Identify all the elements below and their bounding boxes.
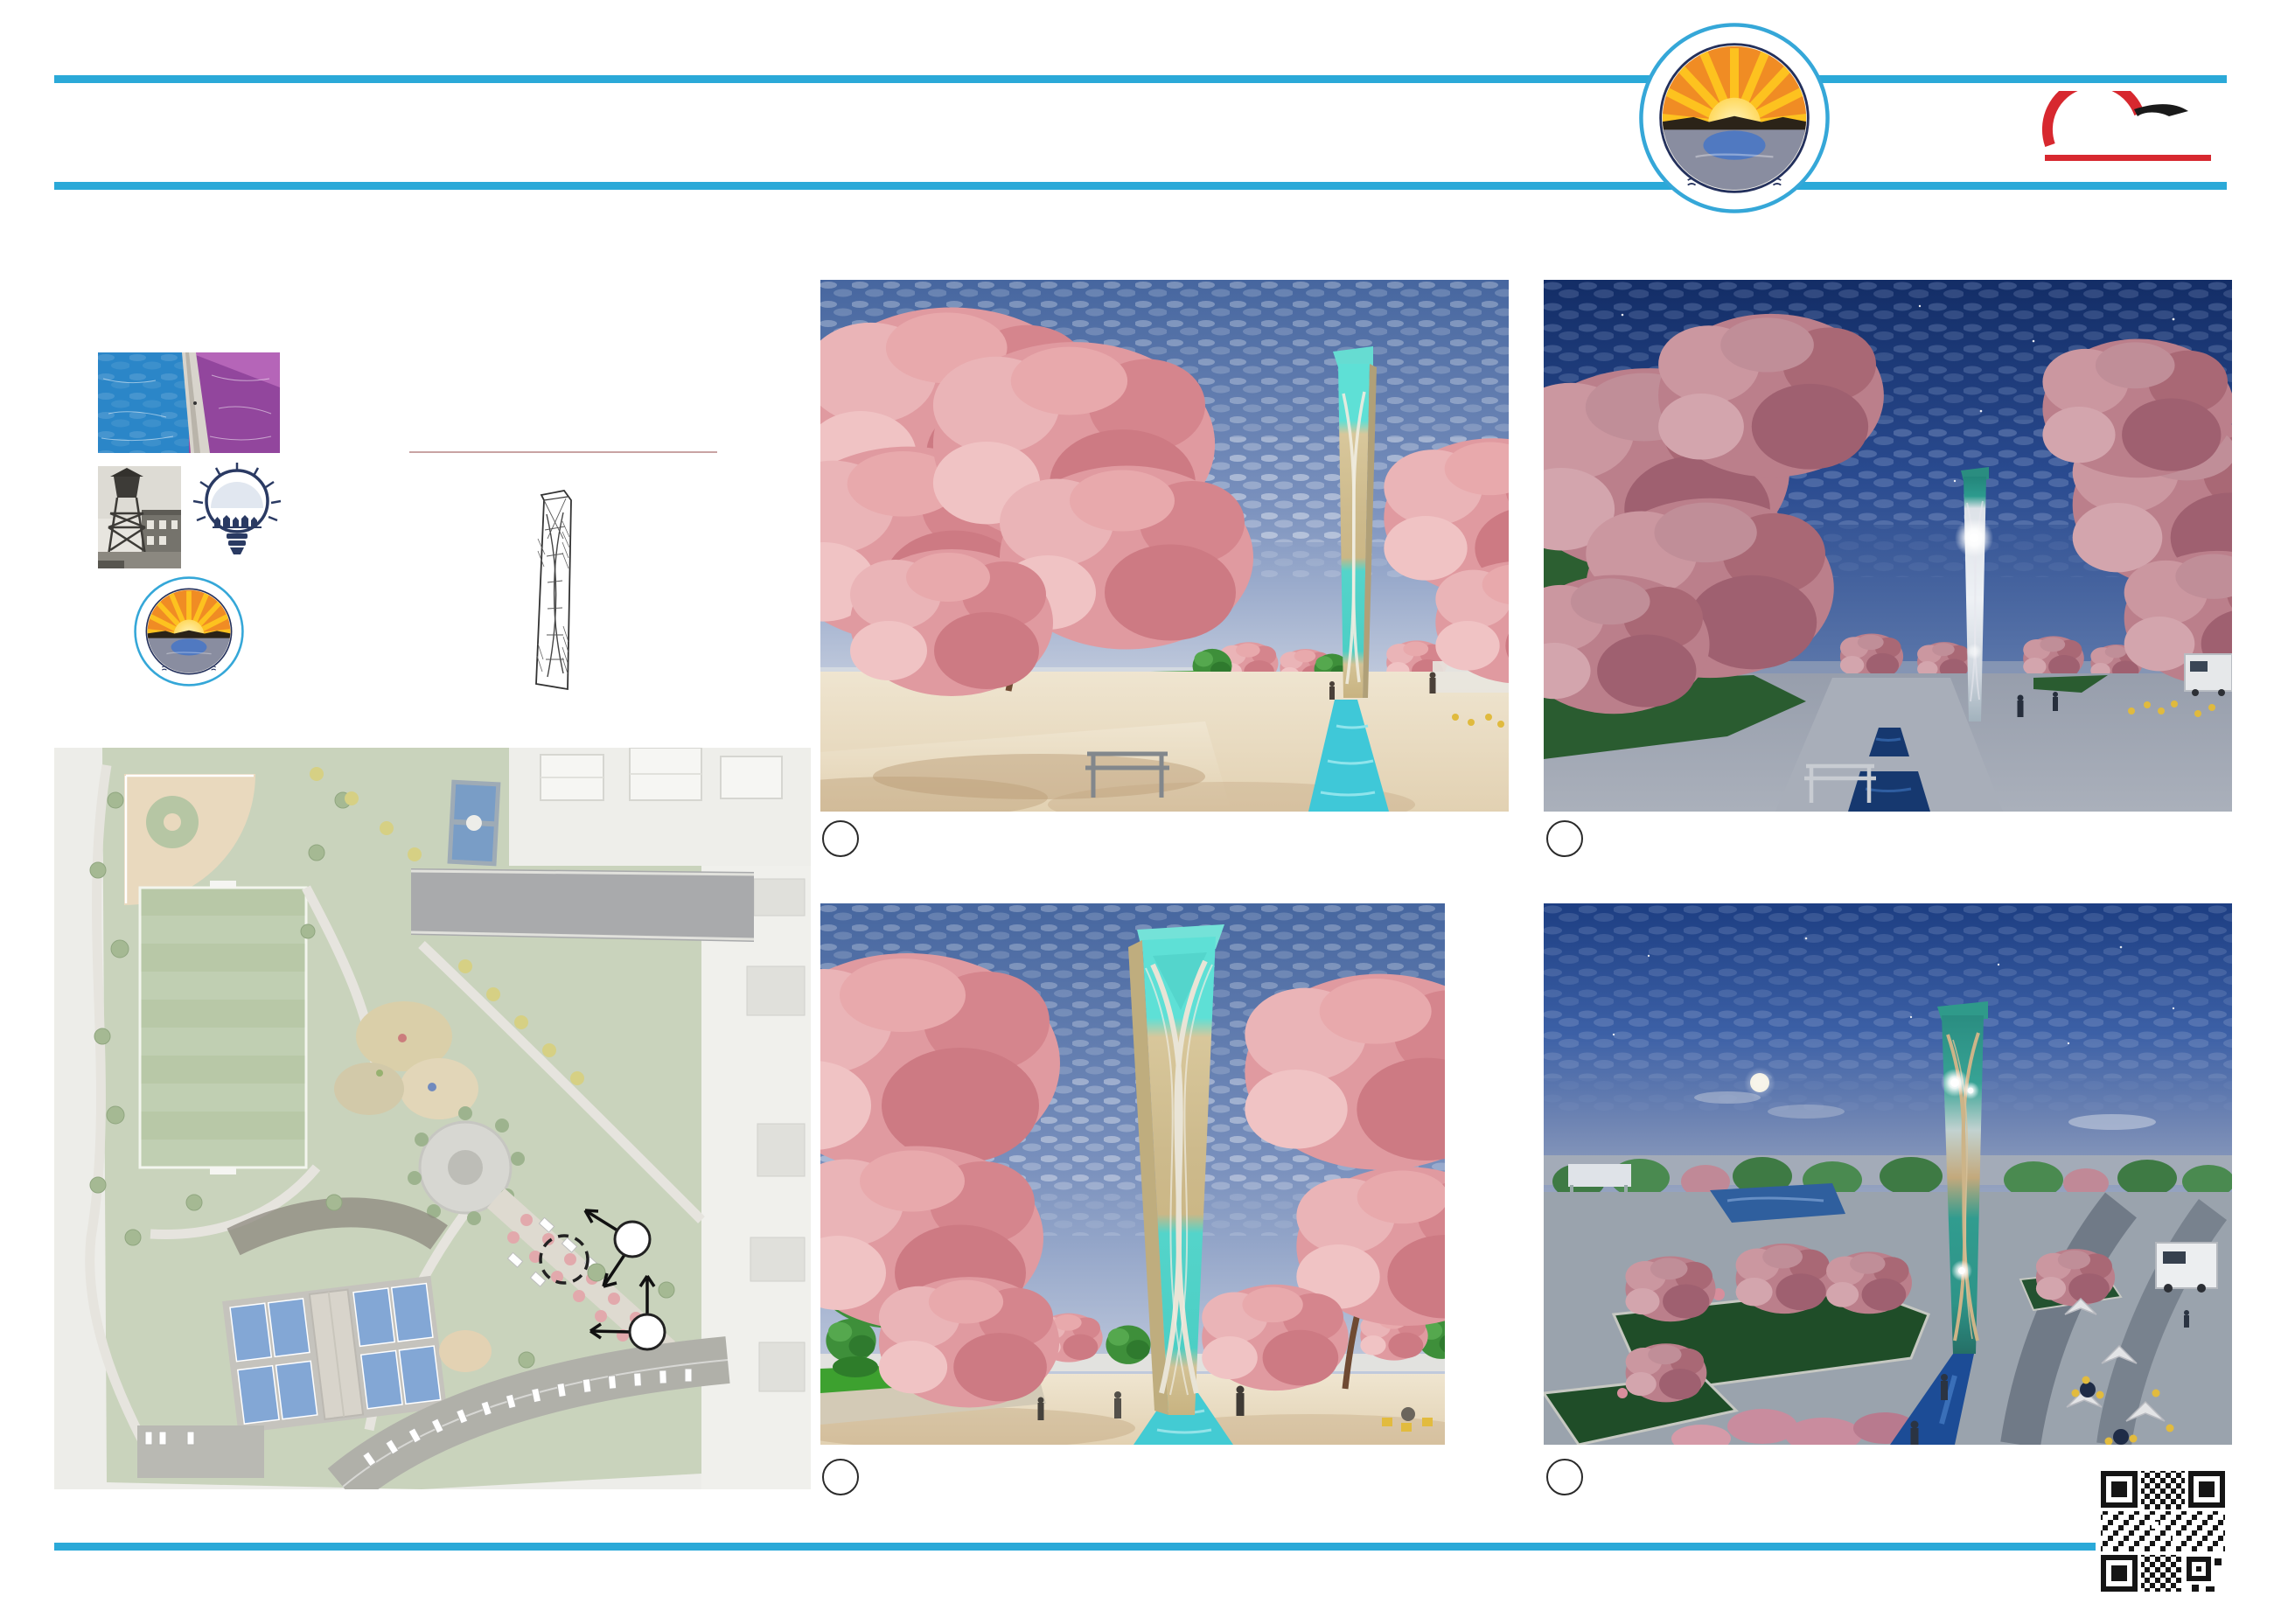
rendering-night-1 (1544, 280, 2232, 812)
gbd-logo (1833, 94, 2017, 175)
rendering-day-2 (820, 903, 1445, 1445)
food-truck (2185, 654, 2232, 696)
city-seal-small (133, 575, 245, 687)
map-wash-overlay (54, 748, 811, 1489)
view-marker-2 (615, 1222, 650, 1257)
footer-rule (54, 1543, 2096, 1551)
imagine-nsl-bulb-logo (192, 457, 283, 559)
header-bottom-rule (54, 182, 2227, 190)
qr-code (2097, 1467, 2229, 1600)
label-day-1 (822, 820, 875, 857)
hogan-arch (2047, 91, 2139, 145)
tower-design-heading (93, 297, 101, 317)
city-seal-logo (1637, 21, 1831, 215)
label-day-2-number (822, 1459, 859, 1495)
water-tank (114, 477, 140, 498)
label-night-1 (1546, 820, 1599, 857)
label-night-2-number (1546, 1459, 1583, 1495)
header-top-rule (54, 75, 2227, 83)
label-day-2 (822, 1459, 875, 1495)
key-map (54, 748, 811, 1489)
rendering-night-2 (1544, 903, 2232, 1445)
label-night-1-number (1546, 820, 1583, 857)
salt-lake-aerial-photo (98, 352, 280, 453)
historic-water-tower-photo (98, 466, 181, 568)
rendering-day-1 (820, 280, 1509, 812)
tower-concept-sketch (527, 486, 585, 696)
view-marker-1 (630, 1314, 665, 1349)
hogan-logo (2038, 91, 2217, 177)
label-night-2 (1546, 1459, 1599, 1495)
hogan-swoosh-tip (2134, 104, 2188, 116)
hogan-red-bar (2045, 155, 2211, 161)
label-day-1-number (822, 820, 859, 857)
food-truck-2 (2156, 1243, 2217, 1293)
blurb-underline (409, 451, 717, 453)
poster-page (0, 0, 2274, 1624)
